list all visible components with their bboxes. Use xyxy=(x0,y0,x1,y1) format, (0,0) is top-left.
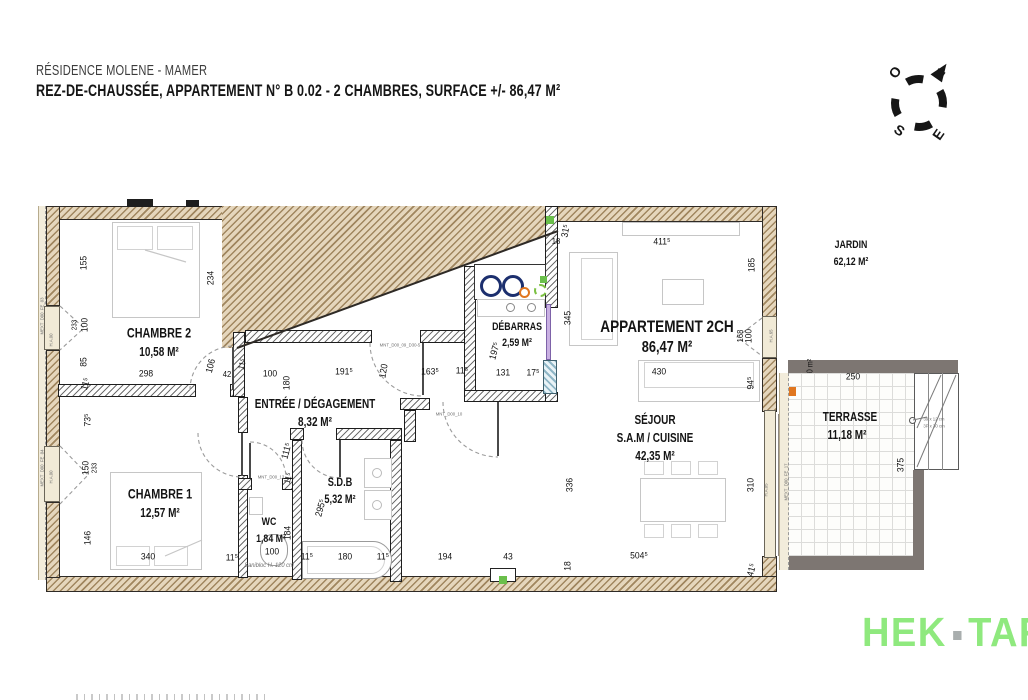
dimension-label: 310 xyxy=(746,478,757,492)
room-label: DÉBARRAS xyxy=(492,321,542,333)
room-label: 42,35 M² xyxy=(635,449,674,463)
logo-dot-icon xyxy=(953,631,961,640)
bed-fold xyxy=(145,250,186,262)
dimension-label: 0 m² xyxy=(806,359,815,373)
dimension-label: 17⁵ xyxy=(526,368,539,379)
annotation-label: H.A.05 xyxy=(764,483,769,496)
dimension-label: 191⁵ xyxy=(335,367,353,378)
room-label: JARDIN xyxy=(835,239,868,251)
room-label: CHAMBRE 2 xyxy=(127,326,191,341)
dimension-label: 11⁵ xyxy=(301,552,313,563)
dimension-label: 100 xyxy=(744,329,755,343)
annotation-label: H.A.00 xyxy=(49,470,54,483)
annotation-label: MNT_D00_10 xyxy=(436,412,463,417)
room-label: S.A.M / CUISINE xyxy=(617,431,694,445)
dimension-label: 250 xyxy=(846,372,860,383)
room-label: ENTRÉE / DÉGAGEMENT xyxy=(255,397,376,411)
annotation-label: 39 x 12 cm xyxy=(924,417,945,422)
dimension-label: 345 xyxy=(563,311,574,325)
dimension-label: 168 xyxy=(735,330,745,343)
dimension-label: 146 xyxy=(83,531,94,545)
dimension-label: 184 xyxy=(283,526,294,540)
annotation-label: Sanibloc H. 120 cm xyxy=(244,563,293,569)
dimension-label: 43 xyxy=(503,552,513,563)
dimension-label: 100 xyxy=(263,369,277,380)
room-label: 8,32 M² xyxy=(298,415,332,429)
room-label: 10,58 M² xyxy=(139,345,178,359)
annotation-label: MEXT_D00_FE_03 xyxy=(40,297,45,334)
dimension-label: 185 xyxy=(747,258,758,272)
dimension-label: 11⁵ xyxy=(456,366,468,377)
room-label: TERRASSE xyxy=(823,410,877,424)
dimension-label: 94⁵ xyxy=(746,376,757,389)
dimension-label: 180 xyxy=(338,552,352,563)
room-label: 12,57 M² xyxy=(140,506,179,520)
dimension-label: 131 xyxy=(496,368,510,379)
dimension-label: 194 xyxy=(438,552,452,563)
annotation-label: H.A.00 xyxy=(49,333,54,346)
annotation-label: MNT_D00_13 xyxy=(258,475,285,480)
door-swing xyxy=(250,442,286,478)
door-swing xyxy=(443,402,498,457)
door-swing xyxy=(198,433,242,477)
door-swing xyxy=(302,440,340,478)
annotation-label: MNT_D00_09_D30-5 xyxy=(380,343,421,348)
dimension-label: 155 xyxy=(79,256,90,270)
logo-text-right: TAR xyxy=(968,609,1028,656)
room-label: 2,59 M² xyxy=(502,337,532,349)
dimension-label: 100 xyxy=(265,547,279,558)
dimension-label: 411⁵ xyxy=(653,237,670,248)
room-label: 62,12 M² xyxy=(834,256,869,268)
dimension-label: 234 xyxy=(206,271,217,285)
dimension-label: 150 xyxy=(81,461,92,475)
annotation-label: H.A.65 xyxy=(769,329,774,342)
floor-plan-sheet: RÉSIDENCE MOLENE - MAMER REZ-DE-CHAUSSÉE… xyxy=(0,0,1028,700)
dimension-label: 73⁵ xyxy=(83,413,94,426)
room-label: CHAMBRE 1 xyxy=(128,487,192,502)
dimension-label: 11⁵ xyxy=(377,552,389,563)
bed-fold xyxy=(165,540,202,556)
room-label: 86,47 M² xyxy=(642,339,693,357)
dimension-label: 233 xyxy=(72,320,79,331)
dimension-label: 18 xyxy=(552,236,561,246)
hektar-logo: HEK TAR xyxy=(862,609,1028,656)
room-label: WC xyxy=(262,516,277,528)
dimension-label: 504⁵ xyxy=(630,551,648,562)
dimension-label: 233 xyxy=(92,463,99,474)
dimension-label: 31⁵ xyxy=(559,224,572,239)
room-label: APPARTEMENT 2CH xyxy=(600,317,734,337)
dimension-label: 336 xyxy=(565,478,576,492)
annotation-label: MEXT_D00_FE_04 xyxy=(40,449,45,486)
dimension-label: 340 xyxy=(141,552,155,563)
dimension-label: 163⁵ xyxy=(421,367,439,378)
dimension-label: 430 xyxy=(652,367,666,378)
cropped-footer-text xyxy=(76,694,271,700)
dimension-label: 375 xyxy=(896,458,907,472)
dimension-label: 11⁵ xyxy=(226,553,238,564)
dimension-label: 100 xyxy=(80,318,91,332)
room-label: 11,18 M² xyxy=(828,428,867,442)
dimension-label: 42 xyxy=(223,369,232,379)
annotation-label: 3P x 30 cm xyxy=(923,424,944,429)
dimension-label: 180 xyxy=(282,376,293,390)
room-label: 1,84 M² xyxy=(256,533,286,545)
room-label: S.D.B xyxy=(328,477,353,489)
dimension-label: 18 xyxy=(563,561,574,571)
dimension-label: 298 xyxy=(139,369,153,380)
logo-text-left: HEK xyxy=(862,609,947,656)
room-label: SÉJOUR xyxy=(634,413,675,427)
annotation-label: MEXT_D00_FE_17 xyxy=(784,463,789,500)
dimension-label: 85 xyxy=(79,357,90,367)
room-label: 5,32 M² xyxy=(324,494,355,506)
